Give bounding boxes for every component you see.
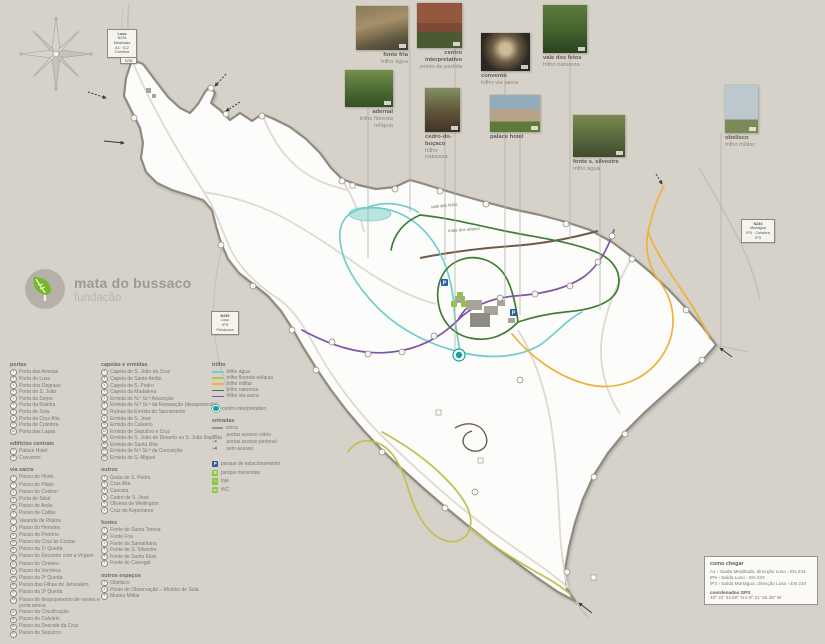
legend-item: 6Passo de Caifás	[10, 510, 102, 517]
legend-item: 8Passo do Herodes	[10, 525, 102, 532]
legend-item: 3Fonte da Samaritana	[101, 540, 209, 547]
legend-item: 4Porta de S. João	[10, 389, 102, 396]
legend-item: 3Capela de S. Pedro	[101, 382, 209, 389]
legend-portas: portas 1Porta das Ameias2Porta do Luso3P…	[10, 362, 102, 435]
numbered-circle-icon: 6	[10, 402, 17, 409]
legend-centro-interpretativo: centro interpretativo	[212, 406, 316, 412]
photo-title: centro interpretativo	[417, 50, 462, 64]
numbered-circle-icon: 2	[10, 376, 17, 383]
numbered-circle-icon: 19	[10, 609, 17, 616]
legend-item: 2Cruz Alta	[101, 481, 209, 488]
legend-item: 4Fonte de S. Silvestre	[101, 547, 209, 554]
numbered-circle-icon: 8	[10, 525, 17, 532]
numbered-circle-icon: 6	[10, 511, 17, 518]
numbered-circle-icon: 4	[101, 494, 108, 501]
photo-subtitle: trilho natureza	[543, 62, 580, 68]
legend-item: 3Museu Militar	[101, 593, 209, 600]
legend-amenities: parque de estacionamentoparque merendasl…	[212, 461, 316, 494]
numbered-circle-icon: 7	[101, 409, 108, 416]
legend-item: 8Porta da Cruz Alta	[10, 415, 102, 422]
photo-title: fonte s. silvestre	[573, 159, 625, 166]
centro-interpretativo-marker	[453, 349, 465, 361]
legend-column-3: trilho trilho águatrilho floresta relíqu…	[212, 362, 316, 499]
legend-item: 12Passo do Encontro com a Virgem	[10, 553, 102, 560]
legend-item: parque merendas	[212, 470, 316, 476]
legend-capelas: capelas e ermidas 1Capela de S. João da …	[101, 362, 209, 461]
numbered-circle-icon: 1	[101, 527, 108, 534]
legend-item: 14Ermida de S. Miguel	[101, 455, 209, 462]
legend-header: trilho	[212, 362, 316, 368]
legend-edificios: edifícios centrais 1Palace Hotel2Convent…	[10, 441, 102, 461]
legend-fontes: fontes 1Fonte de Santa Teresa2Fonte Fria…	[101, 520, 209, 567]
legend-outros: outros 1Gruta de S. Pedro2Cruz Alta3Casc…	[101, 467, 209, 514]
legend-item: 1Fonte de Santa Teresa	[101, 527, 209, 534]
road-number: N235	[122, 59, 135, 63]
numbered-circle-icon: 8	[101, 415, 108, 422]
photo-title: palace hotel	[490, 134, 540, 141]
leaf-logo-icon	[24, 268, 66, 310]
numbered-circle-icon: 2	[10, 455, 17, 462]
legend-item: 5Ermida de N.ª Sr.ª Assunção	[101, 395, 209, 402]
numbered-circle-icon: 10	[101, 428, 108, 435]
numbered-circle-icon: 11	[10, 547, 17, 554]
numbered-circle-icon: 6	[101, 402, 108, 409]
photo-fonte-s-silvestre: fonte s. silvestretrilho água	[573, 115, 625, 157]
numbered-circle-icon: 14	[101, 455, 108, 462]
road-sign-west: N235LusoIP3Penacova	[211, 311, 239, 335]
numbered-circle-icon: 12	[10, 554, 17, 561]
legend-item: loja	[212, 478, 316, 484]
numbered-circle-icon: 3	[101, 593, 108, 600]
photo-image	[725, 85, 758, 133]
legend-item: 2Posto de Observação – Moinho de Sula	[101, 586, 209, 593]
legend-column-1: portas 1Porta das Ameias2Porta do Luso3P…	[10, 362, 102, 644]
numbered-circle-icon: 17	[10, 590, 17, 597]
legend-via-sacra: via sacra 1Passo do Horto2Passo do Pilat…	[10, 467, 102, 637]
numbered-circle-icon: 14	[10, 568, 17, 575]
legend-item: 5Oliveira de Wellington	[101, 501, 209, 508]
legend-item: 8Ermida de S. José	[101, 415, 209, 422]
legend-header: fontes	[101, 520, 209, 526]
legend-espacos: outros espaços 1Obelisco2Posto de Observ…	[101, 573, 209, 600]
trail-color-swatch	[212, 383, 224, 385]
legend-item: 14Passo da Verónica	[10, 568, 102, 575]
gps-coordinates: 40º 22' 34.50'' N e 8º 21' 56.48'' W	[710, 595, 812, 600]
numbered-circle-icon: 2	[101, 481, 108, 488]
legend-item: parque de estacionamento	[212, 461, 316, 467]
photo-subtitle: trilho floresta relíquia	[360, 116, 393, 129]
numbered-circle-icon: 16	[10, 583, 17, 590]
legend-item: 3Porta dos Degraus	[10, 382, 102, 389]
numbered-circle-icon: 7	[10, 518, 17, 525]
centro-interpretativo-icon	[213, 406, 219, 412]
road-sign-line: IP3 · Coimbra	[744, 231, 772, 236]
legend-header: entradas	[212, 418, 316, 424]
trail-color-swatch	[212, 390, 224, 392]
legend-item: cerca	[212, 425, 316, 432]
numbered-circle-icon: 6	[101, 507, 108, 514]
entrance-type-icon	[212, 433, 224, 438]
legend-item: centro interpretativo	[212, 406, 316, 412]
legend-header: portas	[10, 362, 102, 368]
photo-subtitle: ponto de partida	[420, 64, 462, 70]
photo-image	[573, 115, 625, 157]
photo-subtitle: trilho água	[381, 59, 408, 65]
numbered-circle-icon: 6	[101, 560, 108, 567]
legend-item: 7Porta de Sula	[10, 409, 102, 416]
legend-item: 1Gruta de S. Pedro	[101, 475, 209, 482]
trail-color-swatch	[212, 396, 224, 398]
photo-subtitle: trilho natureza	[425, 148, 448, 161]
legend-item: 10Ermida de Sepulcro e Cruz	[101, 428, 209, 435]
legend-item: 21Passo da Descida da Cruz	[10, 623, 102, 630]
legend-item: 2Passo do Pilato	[10, 482, 102, 489]
numbered-circle-icon: 9	[10, 422, 17, 429]
legend-item: 7Varanda de Pilatos	[10, 518, 102, 525]
numbered-circle-icon: 10	[10, 540, 17, 547]
amenity-icon	[212, 487, 218, 493]
photo-title: cedro-do-buçaco	[425, 134, 460, 148]
legend-item: 1Porta das Ameias	[10, 369, 102, 376]
photo-vale-dos-fetos: vale dos fetostrilho natureza	[543, 5, 587, 53]
numbered-circle-icon: 5	[101, 554, 108, 561]
numbered-circle-icon: 3	[10, 382, 17, 389]
legend-item: 13Passo do Cireneu	[10, 561, 102, 568]
photo-title: vale dos fetos	[543, 55, 587, 62]
legend-item: 3Cascata	[101, 488, 209, 495]
numbered-circle-icon: 5	[101, 395, 108, 402]
amenity-icon	[212, 478, 218, 484]
legend-item: 1Palace Hotel	[10, 448, 102, 455]
legend-header: outros espaços	[101, 573, 209, 579]
numbered-circle-icon: 3	[10, 489, 17, 496]
amenity-icon	[212, 470, 218, 476]
numbered-circle-icon: 7	[10, 409, 17, 416]
photo-adernal: adernaltrilho floresta relíquia	[345, 70, 393, 107]
legend-item: 6Ermida de N.ª Sr.ª da Reparação (desapa…	[101, 402, 209, 409]
legend-item: 20Passo do Calvário	[10, 616, 102, 623]
legend-item: 10Passo da Cruz às Costas	[10, 539, 102, 546]
legend-item: 18Passo do despojamento de vestes e port…	[10, 597, 102, 609]
numbered-circle-icon: 22	[10, 631, 17, 638]
picnic-icon	[457, 292, 463, 298]
photo-title: convento	[481, 73, 530, 80]
numbered-circle-icon: 13	[10, 561, 17, 568]
legend-item: 22Passo do Sepulcro	[10, 630, 102, 637]
road-sign-n235-tag: N235	[120, 57, 137, 64]
wc-icon	[461, 301, 467, 307]
photo-image	[356, 6, 408, 50]
photo-cedro-do-bucaco: cedro-do-buçacotrilho natureza	[425, 88, 460, 132]
legend-item: 9Passo do Pretório	[10, 532, 102, 539]
legend-item: 5Porta da Serpe	[10, 395, 102, 402]
legend-item: 7Ruínas da Ermida do Sacramento	[101, 409, 209, 416]
legend-item: 3Passo do Cedron	[10, 489, 102, 496]
svg-text:P: P	[512, 311, 516, 317]
numbered-circle-icon: 1	[101, 369, 108, 376]
photo-palace-hotel: palace hotel	[490, 95, 540, 132]
numbered-circle-icon: 2	[10, 482, 17, 489]
legend-item: 9Porta de Coimbra	[10, 422, 102, 429]
bussaco-park-map-page: { "logo": {"title": "mata do bussaco", "…	[0, 0, 825, 618]
directions-box: como chegar A1 › Saída Mealhada, direcçã…	[704, 556, 818, 605]
numbered-circle-icon: 1	[101, 475, 108, 482]
legend-item: 17Passo da 3ª Queda	[10, 589, 102, 596]
legend-item: 1Obelisco	[101, 580, 209, 587]
legend-item: 4Cedro de S. José	[101, 494, 209, 501]
numbered-circle-icon: 4	[101, 389, 108, 396]
compass-rose-icon	[18, 16, 94, 92]
logo-subtitle: fundação	[74, 292, 191, 304]
trail-color-swatch	[212, 371, 224, 373]
numbered-circle-icon: 2	[101, 376, 108, 383]
trail-color-swatch	[212, 377, 224, 379]
shop-icon	[451, 301, 457, 307]
photo-image	[345, 70, 393, 107]
road-sign-line: IP3	[744, 236, 772, 241]
legend-item: trilho via sacra	[212, 393, 316, 399]
numbered-circle-icon: 3	[101, 488, 108, 495]
legend-item: WC	[212, 487, 316, 493]
svg-text:P: P	[443, 281, 447, 287]
legend-item: 5Fonte de Santo Elias	[101, 554, 209, 561]
legend-item: sem acesso	[212, 446, 316, 453]
photo-convento: conventotrilho via sacra	[481, 33, 530, 71]
photo-subtitle: trilho água	[573, 166, 600, 172]
numbered-circle-icon: 8	[10, 415, 17, 422]
photo-title: obelisco	[725, 135, 758, 142]
legend-item: 6Fonte do Carregal	[101, 560, 209, 567]
legend-item: 11Passo da 1ª Queda	[10, 546, 102, 553]
legend-entradas: entradas cercaportas acesso viárioportas…	[212, 418, 316, 453]
legend-header: edifícios centrais	[10, 441, 102, 447]
numbered-circle-icon: 21	[10, 624, 17, 631]
directions-route: IP3 › Saída Mortágua, direcção Luso › EN…	[710, 581, 812, 587]
legend-item: 11Ermida de S. João de Deserto ou S. Joã…	[101, 435, 209, 442]
legend-item: 2Fonte Fria	[101, 534, 209, 541]
photo-title: adernal	[345, 109, 393, 116]
legend-item: 15Passo da 2ª Queda	[10, 575, 102, 582]
legend-header: outros	[101, 467, 209, 473]
numbered-circle-icon: 1	[10, 369, 17, 376]
amenity-icon	[212, 461, 218, 467]
entrance-type-icon	[212, 440, 224, 445]
legend-item: 6Porta da Rainha	[10, 402, 102, 409]
photo-image	[543, 5, 587, 53]
photo-obelisco: obeliscotrilho militar	[725, 85, 758, 133]
entrance-type-icon	[212, 427, 223, 429]
logo-title: mata do bussaco	[74, 275, 191, 291]
entrance-type-icon	[212, 447, 224, 452]
numbered-circle-icon: 2	[101, 586, 108, 593]
legend-item: 5Passo de Anás	[10, 503, 102, 510]
legend-item: 4Capela da Madalena	[101, 389, 209, 396]
photo-fonte-fria: fonte friatrilho água	[356, 6, 408, 50]
numbered-circle-icon: 9	[101, 422, 108, 429]
photo-title: fonte fria	[356, 52, 408, 59]
road-sign-north: LusoN234MealhadaA1 · IC2Coimbra	[107, 29, 137, 58]
numbered-circle-icon: 4	[10, 497, 17, 504]
numbered-circle-icon: 1	[101, 580, 108, 587]
numbered-circle-icon: 3	[101, 382, 108, 389]
directions-title: como chegar	[710, 561, 812, 567]
numbered-circle-icon: 12	[101, 442, 108, 449]
legend-item: 10Porta das Lapas	[10, 428, 102, 435]
photo-image	[481, 33, 530, 71]
legend-item: 2Capela de Santo Antão	[101, 376, 209, 383]
legend-header: capelas e ermidas	[101, 362, 209, 368]
legend-item: portas acesso viário	[212, 432, 316, 439]
legend-item: 2Porta do Luso	[10, 376, 102, 383]
numbered-circle-icon: 5	[10, 395, 17, 402]
numbered-circle-icon: 9	[10, 533, 17, 540]
legend-item: 9Ermida do Calvário	[101, 422, 209, 429]
legend-item: 6Cruz de Koperlares	[101, 507, 209, 514]
legend-trilhos: trilho trilho águatrilho floresta relíqu…	[212, 362, 316, 400]
numbered-circle-icon: 2	[101, 534, 108, 541]
numbered-circle-icon: 4	[10, 389, 17, 396]
numbered-circle-icon: 13	[101, 448, 108, 455]
legend-item: 4Porta de Siloé	[10, 496, 102, 503]
legend-item: 1Passo do Horto	[10, 474, 102, 481]
road-sign-line: Coimbra	[110, 50, 134, 55]
legend-header: via sacra	[10, 467, 102, 473]
numbered-circle-icon: 11	[101, 435, 108, 442]
photo-subtitle: trilho militar	[725, 142, 755, 148]
legend-item: 19Passo da Crucificação	[10, 609, 102, 616]
photo-image	[417, 3, 462, 48]
legend-item: 1Capela de S. João da Cruz	[101, 369, 209, 376]
legend-column-2: capelas e ermidas 1Capela de S. João da …	[101, 362, 209, 606]
road-sign-east: N234MortáguaIP3 · CoimbraIP3	[741, 219, 775, 243]
legend-item: 2Convento	[10, 455, 102, 462]
numbered-circle-icon: 3	[101, 540, 108, 547]
numbered-circle-icon: 15	[10, 576, 17, 583]
legend-item: 16Passo das Filhas de Jerusalém	[10, 582, 102, 589]
foundation-logo: mata do bussaco fundação	[24, 268, 191, 310]
photo-centro-interpretativo: centro interpretativoponto de partida	[417, 3, 462, 48]
numbered-circle-icon: 18	[10, 597, 17, 604]
photo-subtitle: trilho via sacra	[481, 80, 518, 86]
numbered-circle-icon: 4	[101, 547, 108, 554]
legend-item: 12Ermida de Santa Rita	[101, 442, 209, 449]
photo-image	[425, 88, 460, 132]
numbered-circle-icon: 5	[101, 501, 108, 508]
legend-item: 13Ermida de N.ª Sr.ª da Conceição	[101, 448, 209, 455]
road-sign-line: Penacova	[214, 328, 236, 333]
numbered-circle-icon: 1	[10, 448, 17, 455]
legend-item: portas acesso pedonal	[212, 439, 316, 446]
numbered-circle-icon: 1	[10, 475, 17, 482]
numbered-circle-icon: 5	[10, 504, 17, 511]
numbered-circle-icon: 10	[10, 428, 17, 435]
photo-image	[490, 95, 540, 132]
